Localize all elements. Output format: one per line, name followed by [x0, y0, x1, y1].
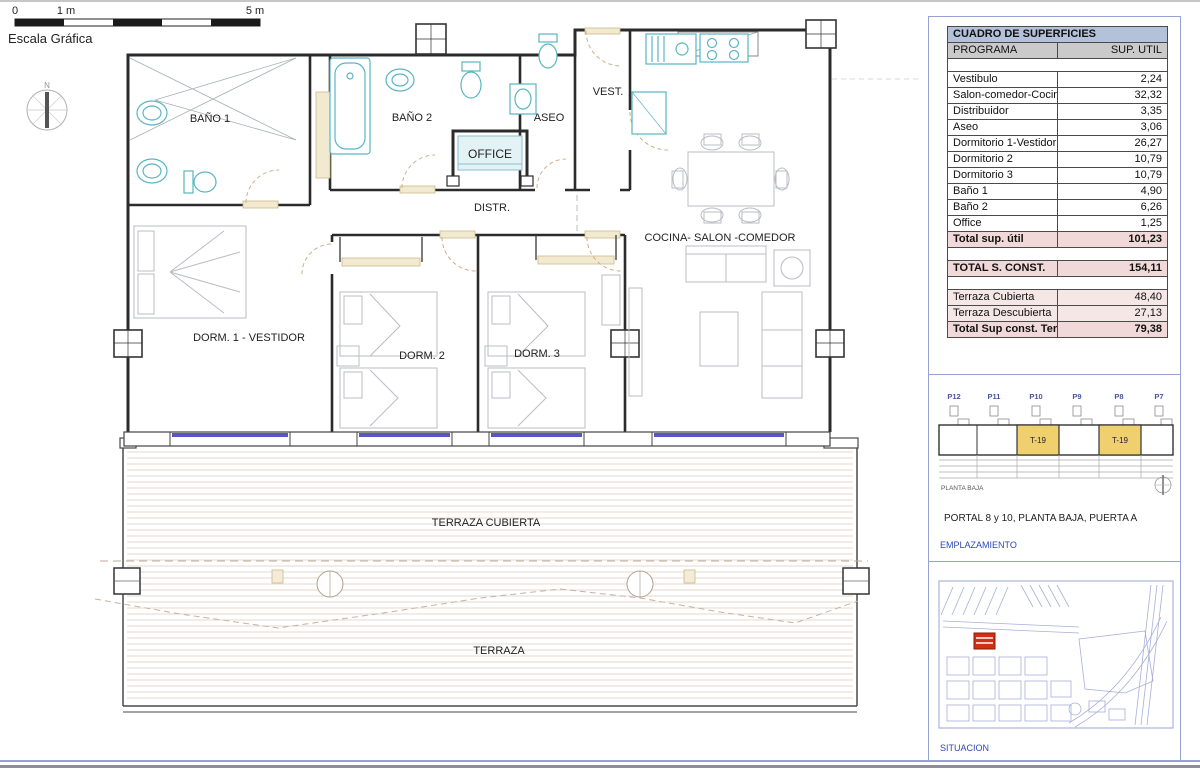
- plot-chimneys: [950, 406, 1172, 426]
- plot-label-p7: P7: [1154, 392, 1163, 401]
- situacion-map: SITUACION: [929, 561, 1180, 762]
- room-label-salon: COCINA- SALON -COMEDOR: [645, 232, 796, 244]
- toilet-icon: [539, 44, 557, 68]
- terrace-row-value: 48,40: [1058, 290, 1168, 306]
- info-panel: CUADRO DE SUPERFICIES PROGRAMA SUP. UTIL…: [928, 16, 1181, 761]
- plot-labels: P12 P11 P10 P9 P8 P7: [947, 392, 1163, 401]
- slope-hatch: [130, 58, 296, 140]
- row-value: 2,24: [1058, 72, 1168, 88]
- terrace-boundary: [120, 438, 858, 712]
- surfaces-section: CUADRO DE SUPERFICIES PROGRAMA SUP. UTIL…: [929, 17, 1180, 375]
- scale-tick-0: 0: [12, 5, 18, 17]
- room-label-terraza-cubierta: TERRAZA CUBIERTA: [432, 517, 541, 529]
- unit-label-t19: T-19: [1112, 436, 1129, 445]
- row-label: Office: [948, 216, 1058, 232]
- sheet-frame-bottom: [0, 760, 1200, 762]
- room-label-dorm1: DORM. 1 - VESTIDOR: [193, 332, 305, 344]
- row-label: Dormitorio 3: [948, 168, 1058, 184]
- floor-label: PLANTA BAJA: [941, 485, 984, 492]
- room-label-bano1: BAÑO 1: [190, 112, 230, 125]
- scale-bar: 0 1 m 5 m Escala Gráfica: [8, 5, 264, 46]
- sofa-set: [629, 246, 810, 398]
- total-util-value: 101,23: [1058, 232, 1168, 248]
- row-label: Dormitorio 2: [948, 152, 1058, 168]
- floor-plan-drawing: 0 1 m 5 m Escala Gráfica N: [0, 0, 930, 768]
- toilet-icon: [461, 72, 481, 98]
- compass-icon: N: [27, 81, 67, 130]
- emplazamiento-section: P12 P11 P10 P9 P8 P7: [929, 374, 1180, 562]
- row-value: 10,79: [1058, 152, 1168, 168]
- table-spacer: [948, 277, 1168, 290]
- window-dorm3: [491, 433, 582, 437]
- row-value: 10,79: [1058, 168, 1168, 184]
- window-dorm2: [359, 433, 450, 437]
- room-label-aseo: ASEO: [534, 112, 565, 124]
- building-strip: T-19 T-19: [939, 425, 1173, 478]
- compass-north-label: N: [44, 81, 50, 90]
- room-label-terraza: TERRAZA: [473, 645, 525, 657]
- map-frame: [939, 581, 1173, 728]
- surfaces-table-title: CUADRO DE SUPERFICIES: [948, 27, 1168, 43]
- room-label-dorm2: DORM. 2: [399, 350, 445, 362]
- row-value: 3,35: [1058, 104, 1168, 120]
- sink-icon: [515, 89, 531, 109]
- total-built-label: TOTAL S. CONST.: [948, 261, 1058, 277]
- terrace-row-label: Terraza Descubierta: [948, 306, 1058, 322]
- table-spacer: [948, 248, 1168, 261]
- room-label-bano2: BAÑO 2: [392, 111, 432, 124]
- terrace-markings: [95, 561, 869, 628]
- row-label: Salon-comedor-Cocina: [948, 88, 1058, 104]
- surfaces-table: CUADRO DE SUPERFICIES PROGRAMA SUP. UTIL…: [947, 26, 1168, 338]
- scale-tick-5m: 5 m: [246, 5, 264, 17]
- row-label: Baño 2: [948, 200, 1058, 216]
- row-label: Baño 1: [948, 184, 1058, 200]
- scale-bar-label: Escala Gráfica: [8, 31, 93, 46]
- total-built-value: 154,11: [1058, 261, 1168, 277]
- row-value: 26,27: [1058, 136, 1168, 152]
- furniture: [134, 134, 810, 428]
- plot-label-p8: P8: [1114, 392, 1123, 401]
- terrace-row-label: Terraza Cubierta: [948, 290, 1058, 306]
- row-label: Distribuidor: [948, 104, 1058, 120]
- window-band: [124, 432, 830, 446]
- terrace-row-value: 27,13: [1058, 306, 1168, 322]
- plot-label-p10: P10: [1029, 392, 1042, 401]
- col-header-program: PROGRAMA: [948, 43, 1058, 59]
- scale-tick-1m: 1 m: [57, 5, 75, 17]
- window-dorm1: [172, 433, 288, 437]
- row-label: Aseo: [948, 120, 1058, 136]
- situacion-section: SITUACION: [929, 561, 1180, 760]
- col-header-area: SUP. UTIL: [1058, 43, 1168, 59]
- plot-label-p9: P9: [1072, 392, 1081, 401]
- room-label-office: OFFICE: [468, 147, 512, 161]
- site-marker: [974, 633, 995, 649]
- toilet-icon: [194, 172, 216, 192]
- plan-sheet: 0 1 m 5 m Escala Gráfica N: [0, 0, 1200, 768]
- plot-label-p12: P12: [947, 392, 960, 401]
- emplazamiento-section-label: EMPLAZAMIENTO: [940, 540, 1017, 550]
- row-value: 32,32: [1058, 88, 1168, 104]
- room-label-vest: VEST.: [593, 86, 624, 98]
- plot-label-p11: P11: [988, 392, 1001, 401]
- window-salon: [654, 433, 784, 437]
- row-value: 6,26: [1058, 200, 1168, 216]
- row-label: Vestibulo: [948, 72, 1058, 88]
- portal-text: PORTAL 8 y 10, PLANTA BAJA, PUERTA A: [944, 513, 1138, 524]
- situacion-section-label: SITUACION: [940, 743, 989, 753]
- total-util-label: Total sup. útil: [948, 232, 1058, 248]
- total-terraces-value: 79,38: [1058, 322, 1168, 338]
- emplazamiento-diagram: P12 P11 P10 P9 P8 P7: [929, 374, 1180, 560]
- row-value: 4,90: [1058, 184, 1168, 200]
- row-label: Dormitorio 1-Vestidor: [948, 136, 1058, 152]
- unit-label-t19: T-19: [1030, 436, 1047, 445]
- room-label-dorm3: DORM. 3: [514, 348, 560, 360]
- room-label-distr: DISTR.: [474, 202, 510, 214]
- dining-table: [672, 134, 789, 223]
- terrace-deck-hatch: [127, 452, 853, 698]
- row-value: 1,25: [1058, 216, 1168, 232]
- bed-double: [134, 226, 246, 318]
- row-value: 3,06: [1058, 120, 1168, 136]
- stove-icon: [700, 34, 748, 62]
- closets-thresholds: [243, 28, 620, 266]
- table-spacer: [948, 59, 1168, 72]
- strip-terrace-hatch: [939, 455, 1173, 478]
- total-terraces-label: Total Sup const. Terrazas: [948, 322, 1058, 338]
